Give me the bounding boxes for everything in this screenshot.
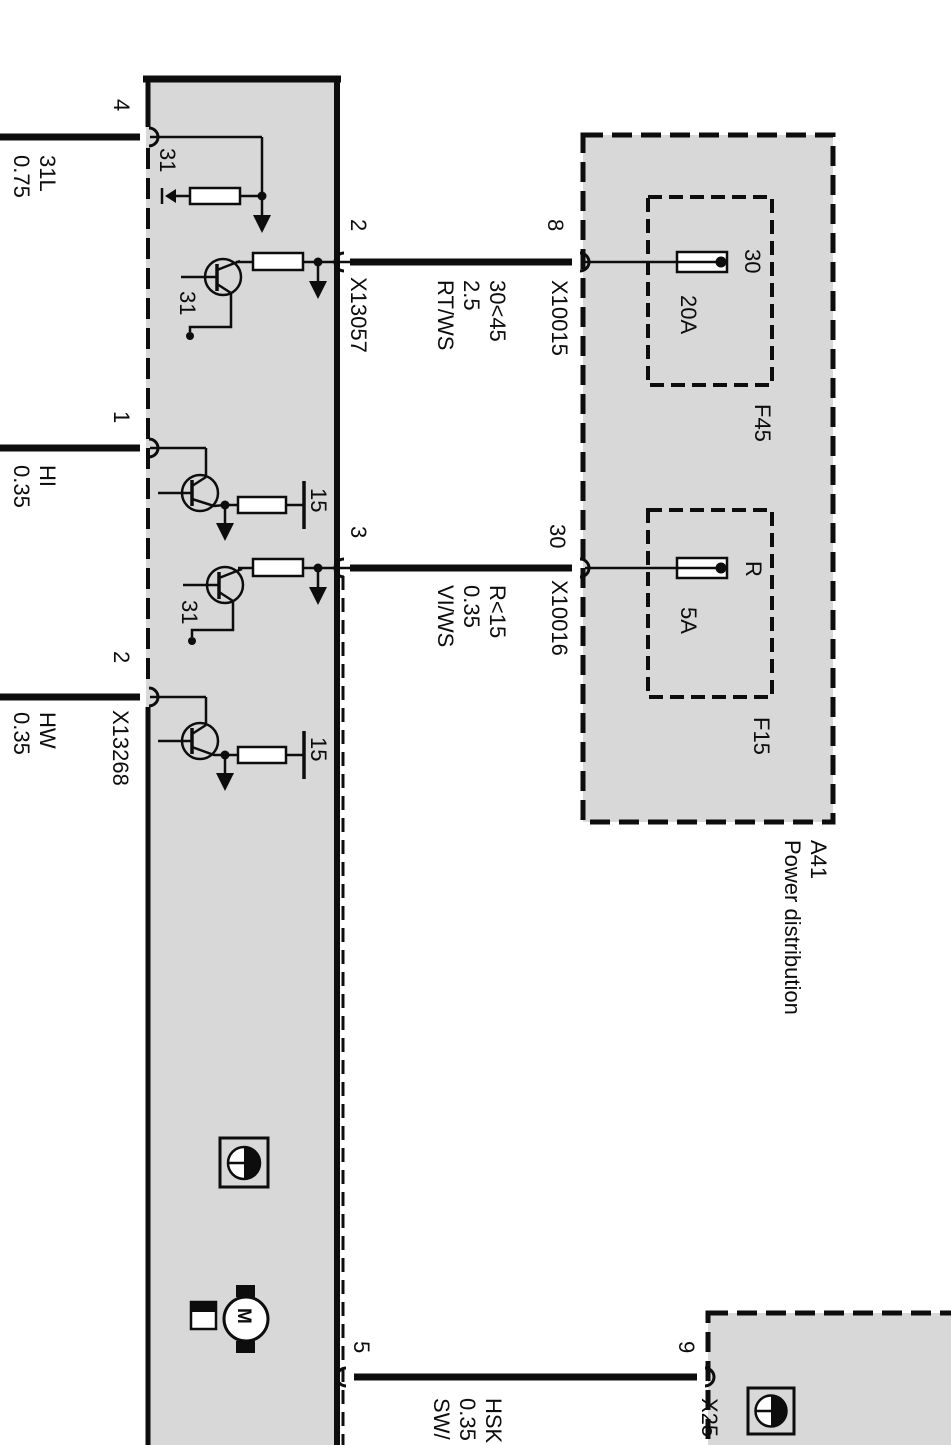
ground-dot (186, 332, 194, 340)
wire-label-vi-ws: R<15 0.35 VI/WS (432, 585, 510, 647)
fuse-f15-rating: 5A (675, 607, 701, 634)
resistor (190, 188, 240, 204)
wire-label-line: 0.35 (454, 1398, 480, 1443)
pin-number-30: 30 (544, 524, 570, 548)
wire-label-sw: HSK 0.35 SW/ (428, 1398, 506, 1443)
a41-outline (583, 135, 833, 822)
pin-number-9: 9 (673, 1341, 699, 1353)
resistor (238, 497, 286, 513)
connector-x10016: X10016 (546, 580, 572, 656)
pin-number-5: 5 (348, 1341, 374, 1353)
pin-number-3: 3 (345, 526, 371, 538)
terminal-31-label-c: 31 (176, 600, 202, 624)
connector-x25: X25 (696, 1398, 722, 1437)
fuse-f15-terminal-dot (716, 563, 727, 574)
terminal-15-label-a: 15 (305, 488, 331, 512)
a41-power-distribution-box (583, 135, 833, 822)
wire-label-line: RT/WS (432, 280, 458, 350)
wire-label-hw: HW 0.35 (8, 712, 60, 755)
wire-label-31l: 31L 0.75 (8, 155, 60, 198)
diagram-canvas (0, 0, 951, 1445)
fuse-f45-id: F45 (749, 404, 775, 442)
connector-x13268: X13268 (107, 710, 133, 786)
resistor (238, 747, 286, 763)
wire-label-line: 30<45 (484, 280, 510, 350)
fuse-f15-terminal-label: R (740, 561, 766, 577)
fuse-f45-terminal-label: 30 (739, 249, 765, 273)
terminal-31-label-b: 31 (174, 291, 200, 315)
wire-label-hi: HI 0.35 (8, 465, 60, 508)
wire-label-line: 0.35 (8, 465, 34, 508)
wire-label-line: 0.35 (8, 712, 34, 755)
a41-name: Power distribution (779, 840, 805, 1015)
a41-id: A41 (805, 840, 831, 1015)
pin-number-4: 4 (108, 99, 134, 111)
wire-label-line: HSK (480, 1398, 506, 1443)
motor-brush-bottom (236, 1341, 255, 1353)
wire-label-line: 0.75 (8, 155, 34, 198)
pin-number-8: 8 (542, 219, 568, 231)
wire-label-line: 0.35 (458, 585, 484, 647)
fuse-f45-terminal-dot (716, 257, 727, 268)
fuse-f15-id: F15 (748, 717, 774, 755)
wire-label-line: R<15 (484, 585, 510, 647)
pin-number-2-right: 2 (345, 219, 371, 231)
motor-m-label: M (230, 1308, 256, 1324)
pin-number-1: 1 (108, 411, 134, 423)
fuse-f45-rating: 20A (675, 295, 701, 334)
resistor (253, 253, 303, 270)
motor-brush-top (236, 1285, 255, 1297)
ground-dot (188, 637, 196, 645)
terminal-15-label-b: 15 (305, 737, 331, 761)
wire-label-line: HW (34, 712, 60, 755)
x25-outline (708, 1313, 951, 1445)
terminal-31-label-a: 31 (154, 148, 180, 172)
wire-label-line: 2.5 (458, 280, 484, 350)
wire-label-line: HI (34, 465, 60, 508)
suppressor-box-band (191, 1302, 216, 1312)
x25-module-box (708, 1313, 951, 1445)
wiring-diagram-page: 4 31L 0.75 1 HI 0.35 2 X13268 HW 0.35 2 … (0, 0, 951, 1445)
connector-x13057: X13057 (345, 277, 371, 353)
pin-number-2-left: 2 (108, 651, 134, 663)
a41-title: A41 Power distribution (779, 840, 831, 1015)
wire-label-line: SW/ (428, 1398, 454, 1443)
resistor (253, 559, 303, 576)
wire-label-line: 31L (34, 155, 60, 198)
connector-x10015: X10015 (546, 280, 572, 356)
wire-label-rt-ws: 30<45 2.5 RT/WS (432, 280, 510, 350)
wire-label-line: VI/WS (432, 585, 458, 647)
